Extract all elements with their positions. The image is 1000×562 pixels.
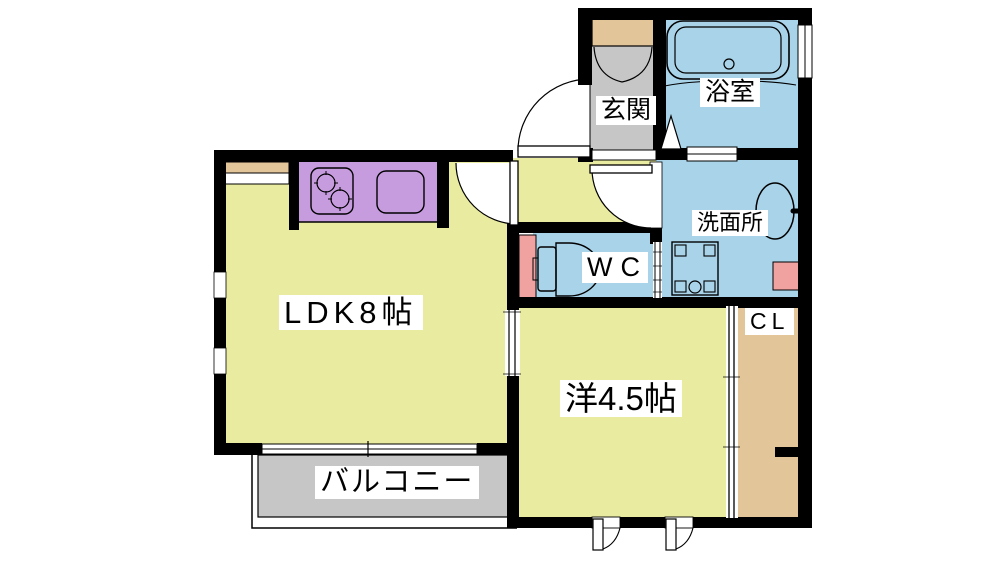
folding-door-icon <box>653 242 662 298</box>
room-label-closet: CL <box>745 308 794 335</box>
sliding-door-icon <box>726 306 738 518</box>
wall <box>214 150 513 162</box>
room-label-washroom: 洗面所 <box>692 210 768 236</box>
window-opening <box>214 272 226 298</box>
door-leaf <box>510 161 518 225</box>
wall <box>214 443 262 455</box>
western-room-sliding-door <box>503 308 521 378</box>
wall <box>578 8 812 20</box>
floor-plan: 玄関 浴室 洗面所 WC LDK8帖 洋4.5帖 CL バルコニー <box>0 0 1000 562</box>
door-leaf <box>590 165 652 173</box>
wall <box>507 374 519 527</box>
door-leaf <box>518 146 590 157</box>
shoe-cabinet-icon <box>592 19 654 46</box>
wc-partition <box>653 242 662 298</box>
tub-outer <box>667 21 789 79</box>
wall <box>437 152 449 228</box>
wall <box>653 8 666 154</box>
closet-floor <box>730 302 798 522</box>
pipe-space-washroom <box>773 262 800 290</box>
wall <box>214 150 226 455</box>
wall <box>507 297 812 308</box>
door-swing-icon <box>518 79 590 151</box>
western-room-window-2 <box>665 517 693 550</box>
room-label-bathroom: 浴室 <box>700 78 760 107</box>
room-label-western-room: 洋4.5帖 <box>560 380 682 417</box>
window-counter-sill <box>225 162 289 173</box>
western-room-window-1 <box>592 517 620 550</box>
window-counter-glass <box>225 173 289 184</box>
wall <box>578 8 592 85</box>
wall <box>650 228 662 244</box>
room-label-ldk: LDK8帖 <box>279 295 423 330</box>
room-label-genkan: 玄関 <box>596 96 656 125</box>
window-opening <box>214 348 226 374</box>
window-swing <box>676 528 693 549</box>
wall <box>798 8 812 527</box>
room-label-wc: WC <box>582 252 648 283</box>
floor-plan-svg <box>0 0 1000 562</box>
bathroom-door-opening <box>687 147 737 161</box>
wall <box>775 447 800 457</box>
wall <box>507 517 812 528</box>
window-leaf <box>666 519 676 550</box>
kitchen-counter <box>297 161 443 222</box>
genkan-step <box>592 150 656 160</box>
wall <box>289 152 299 230</box>
room-label-balcony: バルコニー <box>315 466 479 499</box>
window-leaf <box>593 519 603 550</box>
window-swing <box>603 528 620 549</box>
entrance-door <box>518 79 590 157</box>
bathroom-window <box>798 25 812 78</box>
sliding-door-icon <box>505 310 520 376</box>
